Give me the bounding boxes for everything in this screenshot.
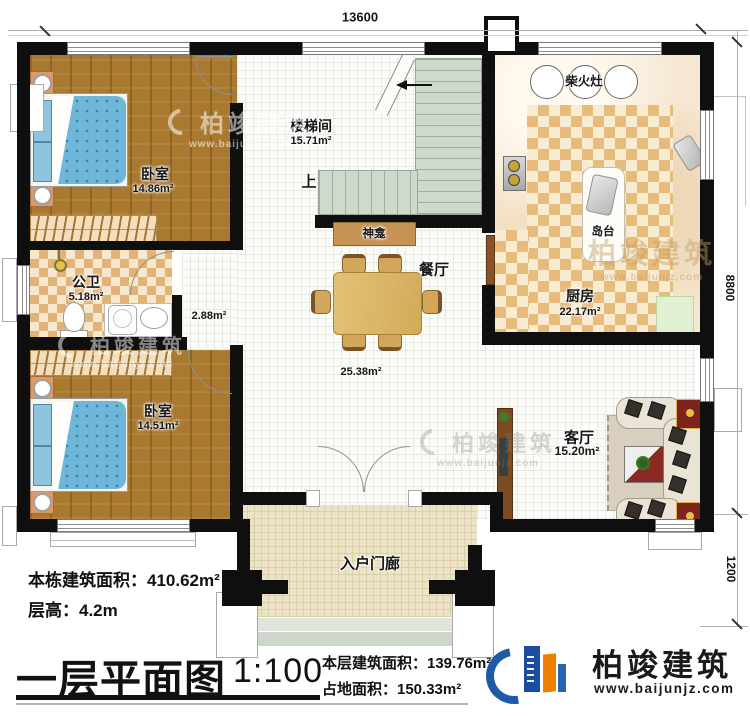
wall [243,492,310,505]
logo-swoosh [475,637,553,715]
dimension-line-right [737,31,738,627]
wall [17,42,30,265]
room-area-kitchen: 22.17m² [560,306,601,318]
wall [172,295,182,342]
room-label-stairwell: 楼梯间 [290,116,332,136]
kitchen-checker-ext [495,230,529,332]
porch-column [429,580,455,594]
toilet-icon [63,302,85,332]
window [302,42,425,55]
lamp-icon [33,493,52,512]
porch-column [262,580,288,594]
porch-label: 入户门廊 [340,553,400,574]
door-jamb [408,490,422,507]
entry-door-arc-right [364,446,410,492]
wall [518,42,538,55]
room-label-bedroom-top: 卧室 [141,164,169,184]
floor-plan-canvas: 13600 8800 1200 [0,0,750,716]
wall [190,42,302,55]
stair-flight-vertical [415,58,482,215]
corridor-area-label: 2.88m² [192,310,227,322]
wall [17,519,57,532]
dining-chair [342,254,366,274]
wall [482,332,714,345]
window-sill [648,532,702,550]
wall [695,519,714,532]
window-sill [50,532,196,547]
logo-building-small [558,664,566,692]
window-ext-line-v [745,96,746,206]
tv-icon [499,438,508,476]
wall [700,42,714,110]
burner [508,174,520,186]
dining-chair [422,290,442,314]
dim-porch-label: 1200 [724,556,738,583]
dining-table [333,272,422,335]
dimension-line-top [8,30,748,31]
stair-up-label: 上 [301,171,316,192]
room-label-dining: 餐厅 [419,259,449,280]
window [655,519,695,532]
wood-stove-burner [530,65,564,99]
wardrobe [30,350,172,376]
dim-tick [695,23,706,34]
kitchen-mat [656,296,694,333]
door-arc [188,350,232,394]
corridor-floor [182,250,237,350]
wall [700,402,714,532]
room-area-bedroom-bottom: 14.51m² [138,420,179,432]
wall [17,337,187,350]
porch-column [455,570,495,606]
lamp-icon [33,186,52,205]
dim-width-label: 13600 [342,10,378,25]
porch-column [237,532,250,572]
island-label: 岛台 [592,223,615,239]
brand-url: www.baijunjz.com [594,681,735,696]
scale-label: 1:100 [233,652,323,691]
kitchen-door-leaf [486,235,495,285]
wall [17,241,243,250]
sink-icon [140,307,168,329]
door-leaf [196,56,233,58]
side-table-ornament [686,409,694,417]
wardrobe [30,215,157,243]
stair-arrow-line [406,84,432,86]
window-sill [2,506,17,546]
door-arc [130,251,174,295]
wall [490,519,655,532]
wall [425,42,485,55]
room-area-dining: 25.38m² [341,366,382,378]
room-area-living: 15.20m² [555,444,600,458]
dining-chair [378,254,402,274]
window [700,110,714,180]
title-underline [16,695,320,700]
brand-name: 柏竣建筑 [592,640,732,685]
logo-building-orange [543,653,556,692]
dimension-ext-line-1 [714,514,748,515]
pillow [33,446,52,486]
plant-icon [636,456,650,470]
porch-column [222,570,262,606]
entry-door-arc-left [318,446,364,492]
pendant-lamp-icon [54,259,67,272]
stair-flight-horizontal [318,170,418,215]
washing-machine-drum [113,309,132,328]
room-label-bedroom-bottom: 卧室 [144,401,172,421]
door-jamb [306,490,320,507]
window [17,265,30,315]
floor-area-note: 本层建筑面积：139.76m² [322,652,491,673]
wood-stove-burner [604,65,638,99]
porch-step-2 [250,631,479,647]
burner [508,160,520,172]
dimension-line-top-2 [8,35,748,36]
wall [482,42,495,233]
room-label-bathroom: 公卫 [72,272,100,292]
pillow [33,404,52,446]
door-arc [195,57,233,95]
window [700,358,714,402]
window-sill [2,258,17,322]
wall [230,103,243,248]
footprint-area-note: 占地面积：150.33m² [322,678,461,699]
lamp-icon [33,379,52,398]
stair-arrow-head-icon [396,80,407,90]
room-area-bathroom: 5.18m² [69,291,104,303]
window [538,42,662,55]
window [57,519,190,532]
building-total-area-note: 本栋建筑面积：410.62m² [28,566,220,591]
logo-building-blue [524,646,540,692]
room-area-stairwell: 15.71m² [291,135,332,147]
title-underline-thin [16,703,468,705]
floor-height-note: 层高：4.2m [28,596,118,621]
brand-logo-icon [486,640,586,712]
wall [190,519,250,532]
pillow [33,142,52,182]
porch-column [468,545,482,570]
room-label-kitchen: 厨房 [566,286,594,306]
window-ext-line-h [714,96,746,97]
shrine-label: 神龛 [363,225,386,241]
dim-height-label: 8800 [723,275,737,302]
room-area-bedroom-top: 14.86m² [133,183,174,195]
plant-icon [499,412,509,422]
window [67,42,190,55]
dining-chair [311,290,331,314]
wood-stove-label: 柴火灶 [565,71,603,90]
